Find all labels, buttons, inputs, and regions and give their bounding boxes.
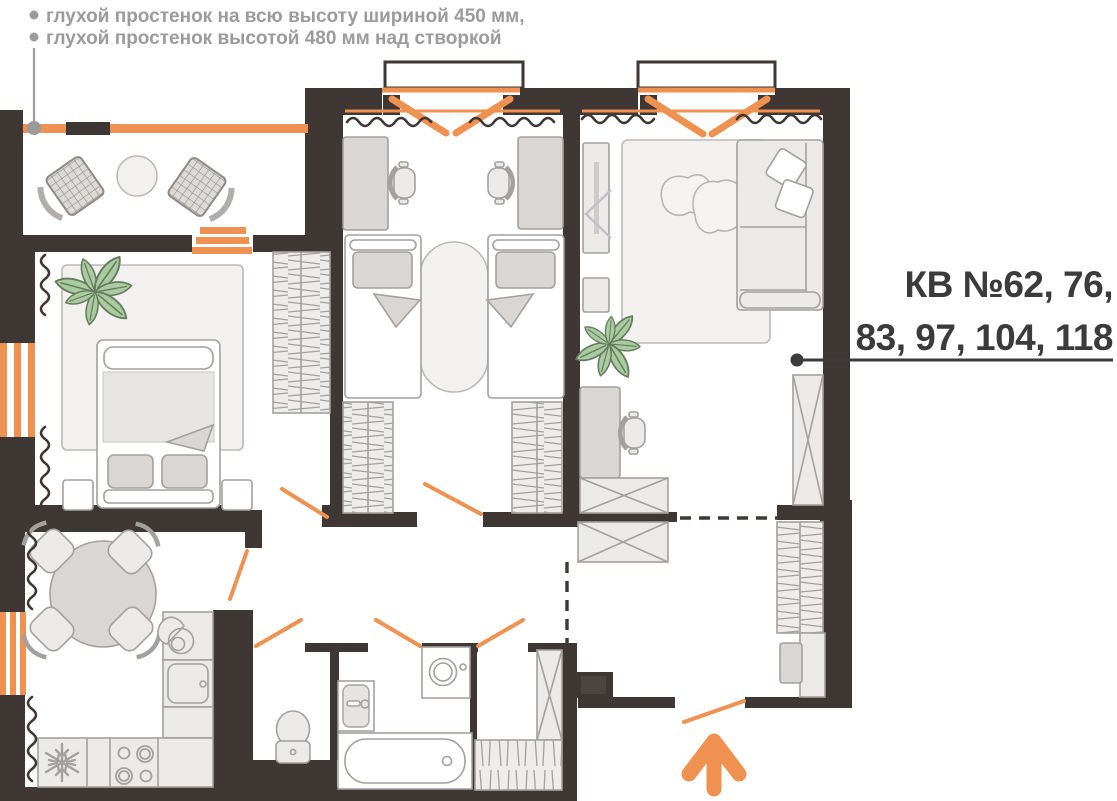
hall-wardrobe — [777, 522, 823, 633]
apartment-numbers-line-1: КВ №62, 76, — [905, 264, 1113, 305]
shoe-rack — [475, 740, 562, 790]
wicker-chair — [167, 156, 239, 226]
kids-room-rug — [420, 242, 488, 392]
bullet-icon — [30, 11, 39, 20]
bathroom-door — [376, 620, 420, 646]
kids-wardrobe — [343, 402, 393, 513]
wc-door — [256, 620, 301, 646]
wicker-chair — [33, 155, 105, 225]
desk-chair — [390, 162, 415, 204]
entry-door — [684, 701, 744, 722]
double-bed — [97, 340, 220, 508]
living-window-sill — [638, 62, 775, 88]
notes-list: глухой простенок на всю высоту шириной 4… — [30, 6, 525, 49]
hall-bench — [780, 643, 802, 683]
bedroom-wardrobe — [273, 252, 330, 413]
wc — [276, 711, 310, 763]
desk-chair — [488, 162, 513, 204]
kids-wardrobe — [512, 402, 562, 513]
closet-door — [478, 620, 523, 646]
apartment-title: КВ №62, 76, 83, 97, 104, 118 — [856, 264, 1113, 358]
apartment-numbers-line-2: 83, 97, 104, 118 — [856, 317, 1113, 358]
tv-console — [583, 143, 611, 253]
balcony — [33, 155, 239, 226]
balcony-glazing — [23, 124, 308, 133]
closet-wardrobe — [537, 650, 562, 740]
nightstand — [63, 480, 93, 510]
note-leader — [27, 48, 41, 135]
single-bed — [487, 235, 564, 398]
note-line-1: глухой простенок на всю высоту шириной 4… — [46, 6, 525, 27]
blind-pier-segment — [66, 122, 110, 135]
corner-sofa — [737, 140, 823, 310]
kitchen — [18, 517, 213, 787]
desk — [580, 387, 620, 478]
storage-dresser — [580, 478, 668, 513]
desk — [518, 137, 563, 229]
hall-console — [800, 633, 825, 697]
bathtub — [338, 733, 472, 789]
tall-wardrobe — [793, 375, 823, 505]
kitchen-door — [230, 551, 247, 599]
bedroom-door — [282, 489, 327, 517]
balcony-steps — [192, 227, 252, 254]
floor-plan-page: глухой простенок на всю высоту шириной 4… — [0, 0, 1117, 801]
hallway — [475, 522, 825, 790]
nightstand — [222, 480, 252, 510]
floor-plan-drawing: глухой простенок на всю высоту шириной 4… — [0, 0, 1117, 801]
corridor-dresser — [578, 522, 668, 562]
balcony-table — [117, 156, 157, 196]
bathroom — [338, 647, 472, 789]
shelf — [583, 278, 609, 312]
bullet-icon — [30, 33, 39, 42]
desk-chair — [620, 412, 645, 454]
entrance-arrow-icon — [689, 741, 739, 789]
washbasin — [338, 681, 374, 731]
desk — [343, 137, 388, 230]
kids-window-sill — [385, 62, 523, 88]
washing-machine — [422, 647, 470, 698]
kitchen-side-window — [0, 612, 26, 695]
note-line-2: глухой простенок высотой 480 мм над ство… — [46, 28, 502, 49]
toilet — [276, 711, 310, 763]
bedroom-side-window — [0, 343, 35, 437]
single-bed — [345, 235, 421, 398]
kids-room-door — [425, 484, 481, 514]
